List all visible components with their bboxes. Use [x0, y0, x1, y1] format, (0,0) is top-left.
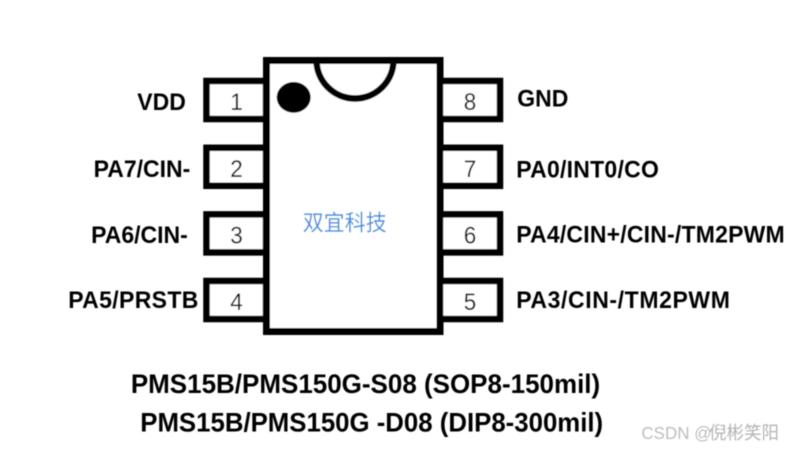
svg-text:5: 5 [464, 288, 477, 315]
svg-text:GND: GND [517, 85, 568, 112]
svg-text:PA6/CIN-: PA6/CIN- [91, 221, 188, 248]
svg-text:2: 2 [230, 155, 243, 182]
svg-text:6: 6 [464, 222, 477, 249]
svg-text:PA5/PRSTB: PA5/PRSTB [68, 286, 199, 313]
svg-text:4: 4 [230, 288, 243, 315]
svg-text:VDD: VDD [137, 88, 186, 115]
svg-text:PA7/CIN-: PA7/CIN- [94, 155, 191, 182]
svg-text:1: 1 [230, 88, 243, 115]
svg-text:PA3/CIN-/TM2PWM: PA3/CIN-/TM2PWM [516, 287, 730, 314]
svg-text:PMS15B/PMS150G-S08 (SOP8-150mi: PMS15B/PMS150G-S08 (SOP8-150mil) [131, 368, 600, 399]
svg-text:7: 7 [464, 155, 477, 182]
svg-text:PA0/INT0/CO: PA0/INT0/CO [516, 156, 659, 183]
svg-text:3: 3 [230, 222, 243, 249]
svg-text:CSDN @: CSDN @ [641, 423, 711, 443]
svg-text:8: 8 [464, 88, 477, 115]
svg-text:PA4/CIN+/CIN-/TM2PWM: PA4/CIN+/CIN-/TM2PWM [516, 221, 785, 248]
svg-text:PMS15B/PMS150G -D08 (DIP8-300m: PMS15B/PMS150G -D08 (DIP8-300mil) [140, 407, 603, 438]
